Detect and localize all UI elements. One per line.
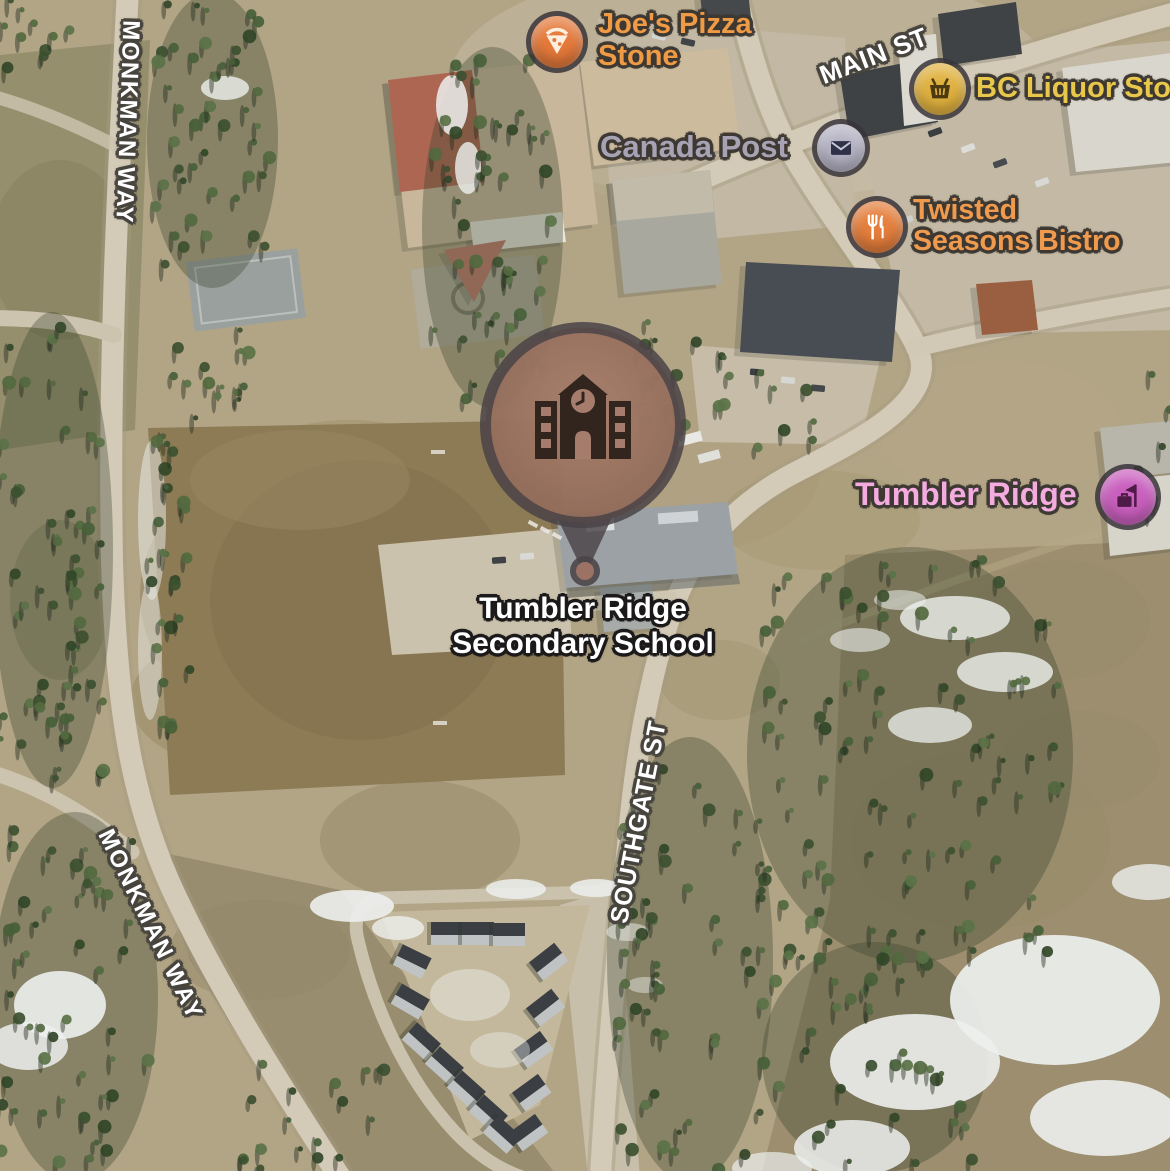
town-icon[interactable]	[1100, 469, 1156, 525]
poi-twisted-seasons-bistro-label: Twisted Seasons Bistro	[913, 195, 1121, 258]
poi-tumbler-ridge-label: Tumbler Ridge	[855, 477, 1077, 512]
shopping-basket-icon[interactable]	[914, 63, 966, 115]
restaurant-icon[interactable]	[851, 201, 903, 253]
poi-joes-pizza-stone-label: Joe's Pizza Stone	[598, 9, 752, 73]
satellite-map[interactable]: MONKMAN WAY MONKMAN WAY MAIN ST SOUTHGAT…	[0, 0, 1170, 1171]
selected-poi-marker[interactable]	[455, 295, 735, 595]
school-icon	[455, 295, 735, 595]
selected-poi-label: Tumbler Ridge Secondary School	[452, 592, 714, 661]
poi-bc-liquor-store-label: BC Liquor Sto	[976, 73, 1170, 105]
mail-icon[interactable]	[817, 124, 865, 172]
pizza-icon[interactable]	[531, 16, 583, 68]
poi-canada-post-label: Canada Post	[600, 130, 788, 164]
